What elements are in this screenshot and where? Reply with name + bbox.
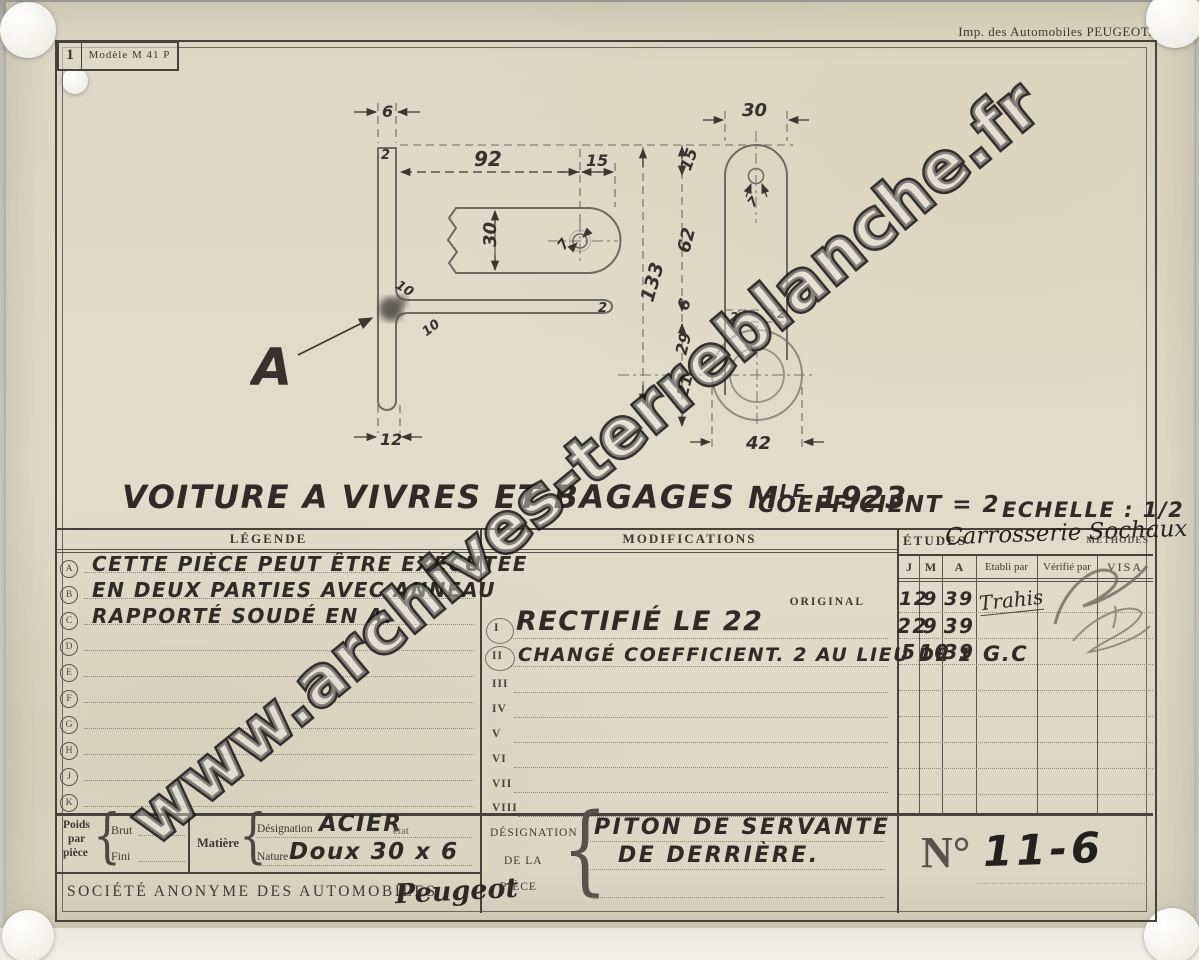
etudes-day: 12: [899, 588, 919, 610]
dim-label: 6: [382, 102, 393, 121]
legend-letter: K: [60, 794, 78, 812]
dim-label: 42: [745, 433, 771, 454]
modification-dotted-line: [514, 717, 888, 718]
etudes-row-line: [899, 716, 1153, 717]
dim-label: 6: [673, 296, 695, 313]
poids-l2: par: [63, 832, 90, 846]
model-box: 1 Modèle M 41 P: [57, 41, 179, 71]
legend-letter: C: [60, 612, 78, 630]
side-view-outline: [378, 148, 621, 410]
dim-label: 15: [676, 146, 701, 173]
poids-matiere-box: Poids par pièce { Brut Fini Matière { Dé…: [57, 815, 480, 872]
numero-label: N°: [921, 827, 970, 878]
etudes-row-line: [899, 742, 1153, 743]
piece-line2: [590, 869, 885, 870]
nature-value: Doux 30 x 6: [289, 839, 458, 865]
modification-num: VI: [492, 753, 507, 765]
dim-label: 92: [474, 147, 502, 171]
col-header-etabli: Etabli par: [976, 561, 1037, 573]
dim-label: 7: [745, 194, 763, 211]
etabli-initials: G.C: [983, 642, 1028, 666]
legend-letter: J: [60, 768, 78, 786]
legend-letter: D: [60, 638, 78, 656]
echelle-note: ECHELLE : 1/2: [1002, 498, 1184, 522]
dim-label: 30: [480, 222, 501, 247]
col-header-j: J: [899, 560, 919, 575]
modification-num-circle: [486, 618, 514, 644]
etat-label: état: [393, 825, 409, 837]
designation-label: Désignation: [257, 823, 313, 835]
modification-dotted-line: [514, 692, 888, 693]
piece-brace: {: [562, 792, 608, 905]
col-header-m: M: [919, 560, 942, 575]
modification-num: VII: [492, 778, 512, 790]
scanned-drawing-sheet: Imp. des Automobiles PEUGEOT. 1 Modèle M…: [0, 0, 1199, 960]
mod-header-rule1: [482, 549, 897, 550]
dim-label: 7: [554, 236, 573, 254]
societe-box: SOCIÉTÉ ANONYME DES AUTOMOBILES Peugeot: [57, 874, 480, 912]
numero-value: 11-6: [982, 823, 1105, 876]
piece-line1: [590, 841, 885, 842]
model-box-label: Modèle M 41 P: [82, 43, 177, 69]
modification-num: V: [492, 728, 501, 740]
legend-letter: F: [60, 690, 78, 708]
legend-header: LÉGENDE: [57, 531, 480, 547]
etudes-year: 39: [942, 614, 976, 638]
original-label: ORIGINAL: [790, 596, 865, 608]
sheet-title-main: VOITURE A VIVRES ET BAGAGES: [122, 478, 735, 516]
societe-label: SOCIÉTÉ ANONYME DES AUTOMOBILES: [67, 883, 437, 901]
dim-label: 10: [420, 317, 443, 340]
dim-label: 2: [598, 301, 607, 316]
poids-l1: Poids: [63, 818, 90, 832]
piece-value-line1: PITON DE SERVANTE: [594, 815, 890, 840]
matiere-label: Matière: [197, 836, 239, 851]
model-box-number: 1: [59, 43, 82, 69]
numero-box: N° 11-6: [899, 815, 1153, 912]
modification-num: VIII: [492, 802, 518, 814]
legend-letter: G: [60, 716, 78, 734]
col-header-a: A: [942, 560, 976, 575]
dim-label: 2: [381, 148, 390, 163]
etudes-year: 39: [942, 588, 976, 610]
a-marker-label: A: [250, 338, 292, 398]
etudes-row-line: [899, 690, 1153, 691]
piece-value-line2: DE DERRIÈRE.: [618, 843, 820, 868]
piece-line3: [590, 897, 885, 898]
poids-l3: pièce: [63, 846, 90, 860]
etudes-row-line: [899, 794, 1153, 795]
legend-letter: H: [60, 742, 78, 760]
scan-bottom-margin: [0, 928, 1199, 960]
fini-label: Fini: [111, 849, 130, 864]
dim-label: 30: [742, 100, 767, 121]
etudes-month: 9: [919, 588, 942, 610]
nature-line: [257, 865, 472, 866]
nature-label: Nature: [257, 851, 288, 863]
designation-line: [257, 837, 472, 838]
etudes-row-line: [899, 768, 1153, 769]
coefficient-note: COEFFICIENT = 2: [758, 492, 1000, 518]
modification-num-circle: [485, 646, 515, 671]
modification-num: IV: [492, 703, 507, 715]
etudes-day: 5: [899, 640, 919, 664]
piece-label-l3: PIÈCE: [500, 881, 537, 893]
legend-letter: B: [60, 586, 78, 604]
legend-letter: A: [60, 560, 78, 578]
etudes-month: 9: [919, 614, 942, 638]
dim-label: 12: [380, 430, 402, 449]
numero-line: [977, 883, 1147, 884]
piece-label-l2: DE LA: [504, 855, 543, 867]
a-pointer-arrow: [298, 318, 372, 355]
brut-label: Brut: [111, 823, 132, 838]
modifications-table: ORIGINAL I RECTIFIÉ LE 22 II CHANGÉ COEF…: [488, 590, 893, 813]
dim-label: 133: [637, 260, 669, 304]
etudes-vline: [976, 556, 977, 813]
dim-label: 62: [674, 226, 700, 255]
etudes-year: 39: [942, 640, 976, 664]
imprint-text: Imp. des Automobiles PEUGEOT.: [830, 24, 1152, 40]
modification-note: RECTIFIÉ LE 22: [516, 606, 763, 637]
etudes-table: ÉTUDES MÉTHODES Carrosserie Sochaux J M …: [899, 528, 1153, 813]
modification-dotted-line: [514, 742, 888, 743]
etudes-month: 10: [919, 640, 942, 664]
modification-num: III: [492, 678, 508, 690]
modification-dotted-line: [510, 666, 888, 667]
visa-signature: [1045, 546, 1155, 676]
piece-designation-box: DÉSIGNATION DE LA PIÈCE { PITON DE SERVA…: [482, 815, 895, 912]
legend-letter: E: [60, 664, 78, 682]
modification-dotted-line: [514, 767, 888, 768]
corner-mount-top-left: [0, 2, 56, 58]
designation-value: ACIER: [319, 811, 402, 837]
corner-mount-bottom-left: [2, 910, 54, 960]
etudes-day: 22: [897, 614, 920, 638]
fini-line: [139, 861, 185, 862]
modification-dotted-line: [510, 638, 888, 639]
poids-label: Poids par pièce: [63, 818, 90, 860]
mod-header-rule2: [482, 552, 897, 553]
dim-label: 15: [586, 151, 608, 170]
